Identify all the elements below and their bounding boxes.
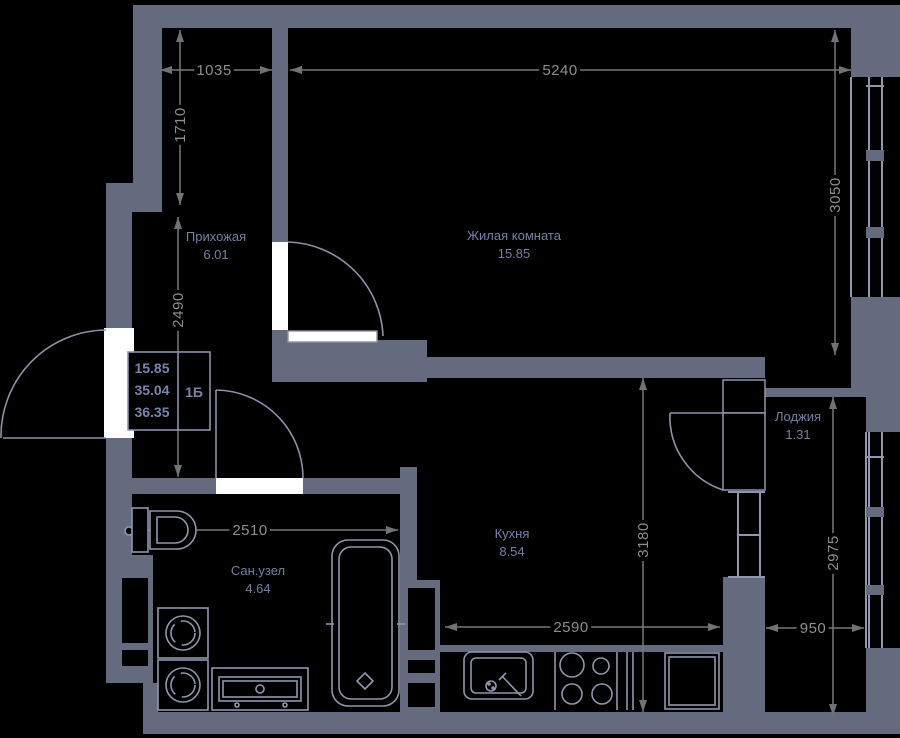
kitchen-sink <box>464 652 533 699</box>
dim-label-2490: 2490 <box>170 292 187 327</box>
room-label-hallway: Прихожая 6.01 <box>186 229 246 262</box>
dim-label-2590: 2590 <box>553 619 588 636</box>
dim-living-width: 5240 <box>290 62 851 79</box>
hallway-name: Прихожая <box>186 229 246 244</box>
entrance-door <box>1 328 134 438</box>
fridge <box>665 653 719 709</box>
dim-label-3050: 3050 <box>827 177 844 212</box>
dim-label-1710: 1710 <box>172 107 189 142</box>
info-unit-label: 1Б <box>185 384 203 400</box>
stove <box>555 652 617 710</box>
dim-hall-upper-height: 1710 <box>172 30 189 205</box>
loggia-name: Лоджия <box>775 409 821 424</box>
loggia-area: 1.31 <box>785 427 810 442</box>
room-label-loggia: Лоджия 1.31 <box>775 409 821 442</box>
dim-label-2975: 2975 <box>825 535 842 570</box>
room-label-kitchen: Кухня 8.54 <box>495 526 530 559</box>
hallway-area: 6.01 <box>203 247 228 262</box>
room-label-bathroom: Сан.узел 4.64 <box>231 563 285 596</box>
toilet <box>125 508 196 552</box>
room-label-living: Жилая комната 15.85 <box>467 228 562 261</box>
floor-plan-page: 1035 5240 1710 2490 3050 <box>0 0 900 738</box>
kitchen-name: Кухня <box>495 526 530 541</box>
living-name: Жилая комната <box>467 228 562 243</box>
balcony-door <box>670 380 765 490</box>
living-room-door <box>272 242 383 342</box>
apartment-info-box: 15.85 35.04 36.35 1Б <box>128 352 210 430</box>
dim-loggia-width: 950 <box>766 620 864 637</box>
kitchen-loggia-window <box>728 492 765 577</box>
vanity-sink <box>212 668 308 710</box>
living-room-window <box>851 77 884 297</box>
info-apartment-area: 35.04 <box>134 382 169 398</box>
dim-label-2510: 2510 <box>232 522 267 539</box>
info-living-area: 15.85 <box>134 360 169 376</box>
dim-label-3180: 3180 <box>635 522 652 557</box>
dim-label-950: 950 <box>800 620 827 637</box>
bathtub <box>326 540 405 706</box>
bathroom-name: Сан.узел <box>231 563 285 578</box>
walls <box>106 5 900 734</box>
loggia-window <box>866 432 884 648</box>
dim-loggia-height: 2975 <box>825 397 842 716</box>
dim-hall-lower-height: 2490 <box>170 217 187 477</box>
floor-plan: 1035 5240 1710 2490 3050 <box>0 0 900 738</box>
dim-kitchen-width: 2590 <box>445 619 720 636</box>
dim-label-1035: 1035 <box>196 62 231 79</box>
kitchen-filler-panel <box>627 652 633 710</box>
living-area: 15.85 <box>498 246 531 261</box>
bathroom-area: 4.64 <box>245 581 270 596</box>
washing-machine-top <box>158 608 208 658</box>
dim-living-height: 3050 <box>827 30 844 355</box>
dim-hall-top-width: 1035 <box>160 62 272 79</box>
kitchen-area: 8.54 <box>499 544 524 559</box>
bathroom-door <box>216 390 303 494</box>
info-total-area: 36.35 <box>134 404 169 420</box>
dim-label-5240: 5240 <box>542 62 577 79</box>
washing-machine-bottom <box>158 660 208 710</box>
dim-kitchen-height: 3180 <box>635 378 652 712</box>
